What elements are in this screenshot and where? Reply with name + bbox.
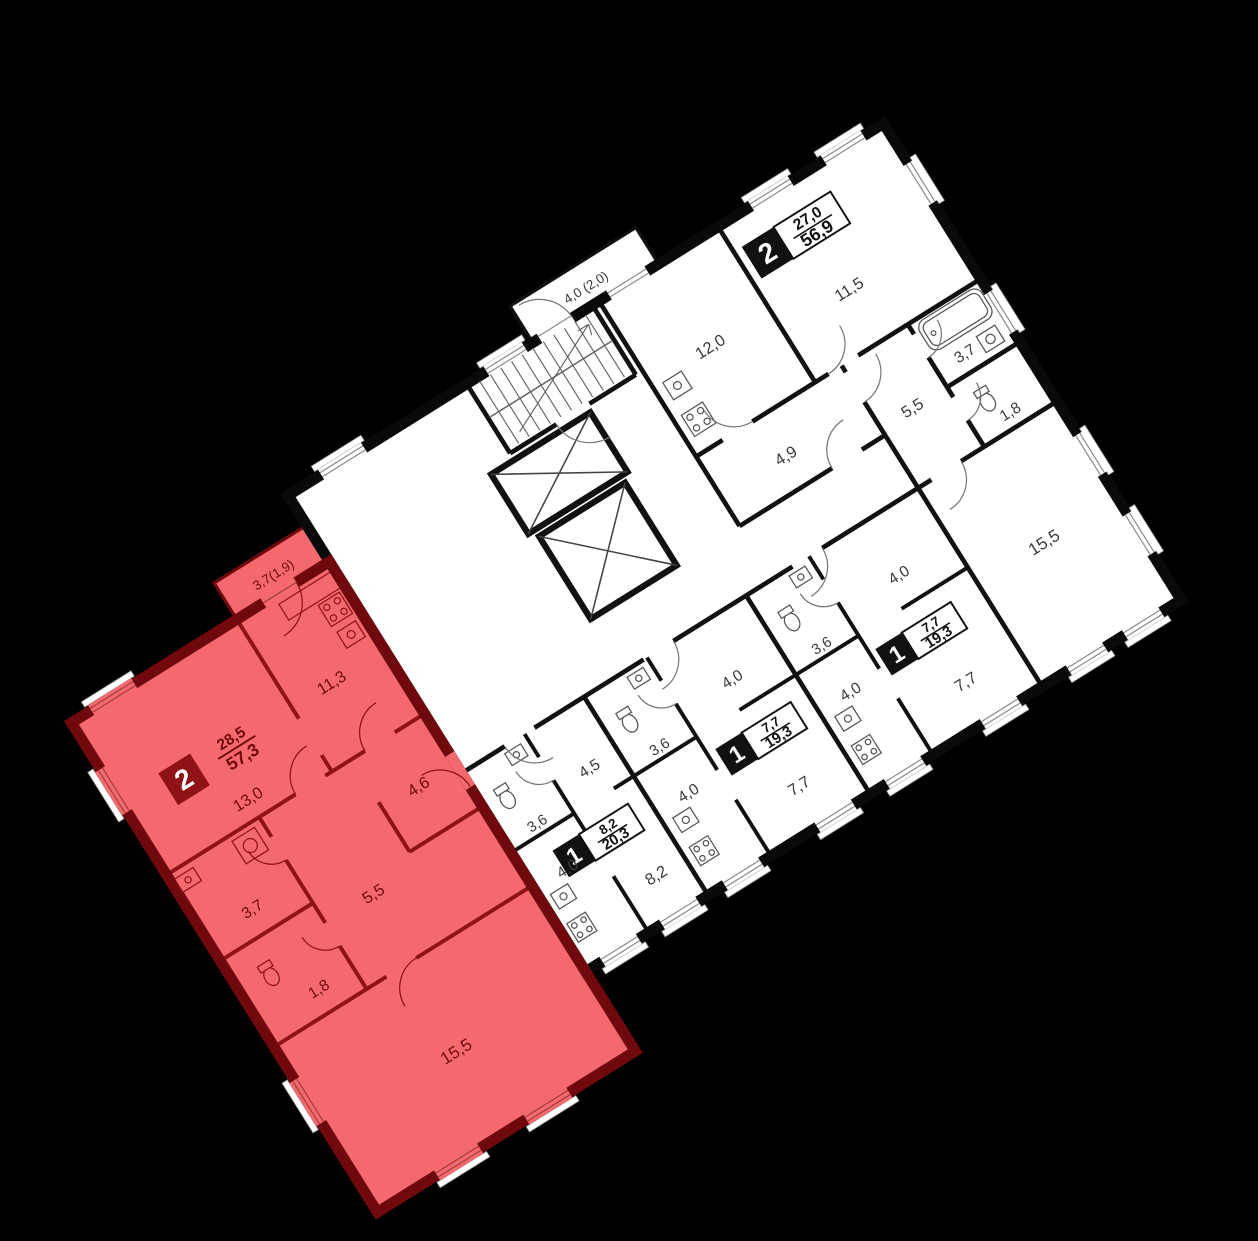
floor-plan-svg: 2 28,5 57,3 2 27,0 56,9 1 8,2 20,3 1 7,7 [0,0,1258,1241]
floor-plan-screenshot: 2 28,5 57,3 2 27,0 56,9 1 8,2 20,3 1 7,7 [0,0,1258,1241]
